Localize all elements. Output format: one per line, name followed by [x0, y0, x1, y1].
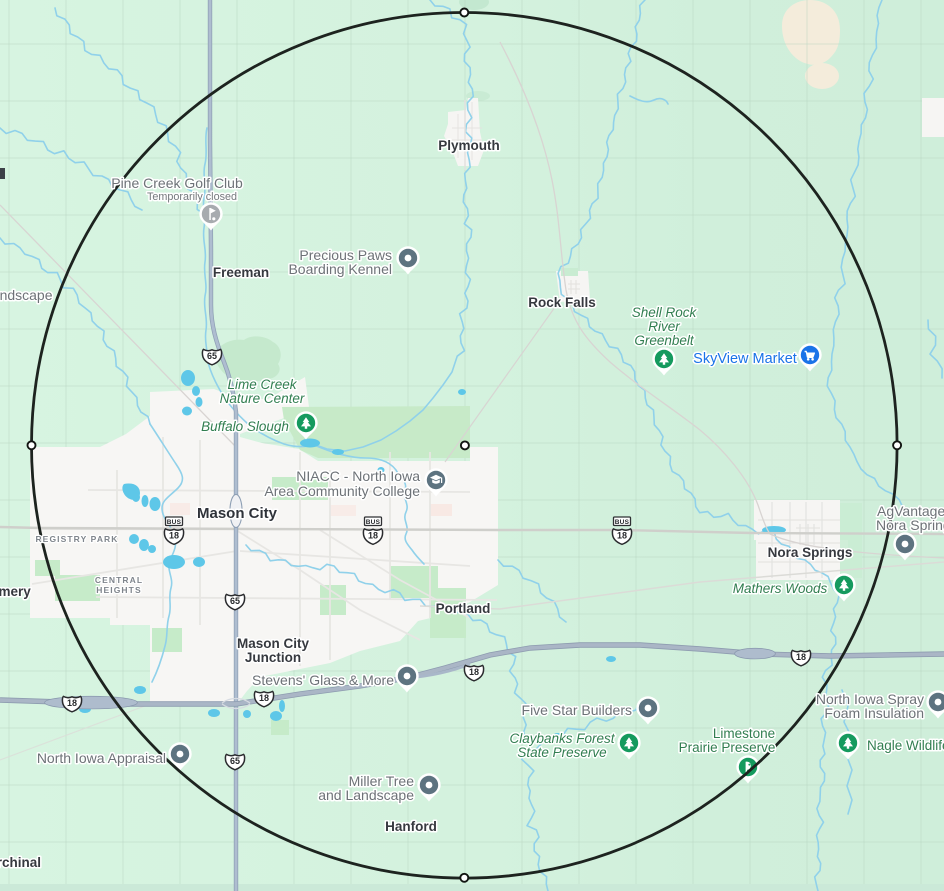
svg-text:65: 65 [207, 351, 217, 361]
svg-text:18: 18 [469, 667, 479, 677]
svg-text:BUS: BUS [615, 519, 630, 526]
svg-text:Junction: Junction [245, 650, 301, 665]
svg-text:18: 18 [617, 531, 627, 541]
svg-text:North Iowa Appraisal: North Iowa Appraisal [37, 750, 166, 766]
svg-text:Landscape: Landscape [0, 287, 53, 303]
svg-text:Mason City: Mason City [197, 505, 278, 522]
svg-text:18: 18 [796, 652, 806, 662]
svg-text:NIACC - North Iowa: NIACC - North Iowa [296, 468, 420, 484]
svg-text:Boarding Kennel: Boarding Kennel [288, 261, 392, 277]
svg-text:CENTRAL: CENTRAL [95, 575, 143, 585]
svg-text:Portland: Portland [436, 601, 491, 616]
svg-text:Plymouth: Plymouth [438, 138, 500, 153]
svg-text:Nora Spring: Nora Spring [876, 517, 944, 533]
svg-text:Greenbelt: Greenbelt [634, 333, 695, 348]
svg-text:Hanford: Hanford [385, 819, 437, 834]
svg-text:Mason City: Mason City [237, 636, 310, 651]
svg-text:SkyView Market: SkyView Market [693, 351, 797, 367]
svg-text:65: 65 [230, 596, 240, 606]
svg-text:18: 18 [67, 698, 77, 708]
svg-text:Prairie Preserve: Prairie Preserve [679, 740, 776, 755]
svg-text:BUS: BUS [167, 519, 182, 526]
svg-text:Nora Springs: Nora Springs [768, 545, 853, 560]
svg-text:Emery: Emery [0, 584, 31, 599]
svg-text:Nagle Wildlife: Nagle Wildlife [867, 738, 944, 753]
svg-text:Temporarily closed: Temporarily closed [147, 191, 237, 203]
svg-text:Foam Insulation: Foam Insulation [824, 705, 924, 721]
svg-text:Nature Center: Nature Center [220, 391, 305, 406]
svg-text:18: 18 [169, 531, 179, 541]
svg-text:Lime Creek: Lime Creek [227, 377, 297, 392]
svg-text:Pine Creek Golf Club: Pine Creek Golf Club [111, 175, 243, 191]
svg-text:State Preserve: State Preserve [517, 745, 606, 760]
svg-text:and Landscape: and Landscape [318, 787, 414, 803]
svg-text:River: River [648, 319, 680, 334]
svg-text:Limestone: Limestone [713, 726, 775, 741]
svg-text:Five Star Builders: Five Star Builders [522, 702, 632, 718]
svg-text:Area Community College: Area Community College [264, 483, 420, 499]
svg-text:18: 18 [259, 693, 269, 703]
svg-text:Mathers Woods: Mathers Woods [733, 581, 828, 596]
svg-text:Marchinal: Marchinal [0, 855, 41, 870]
svg-text:Claybanks Forest: Claybanks Forest [509, 731, 615, 746]
svg-text:HEIGHTS: HEIGHTS [96, 585, 141, 595]
svg-text:BUS: BUS [366, 519, 381, 526]
svg-text:65: 65 [230, 756, 240, 766]
svg-text:18: 18 [368, 531, 378, 541]
svg-text:REGISTRY PARK: REGISTRY PARK [35, 534, 118, 544]
svg-text:Freeman: Freeman [213, 265, 269, 280]
svg-text:Stevens' Glass & More: Stevens' Glass & More [252, 672, 394, 688]
svg-text:Buffalo Slough: Buffalo Slough [201, 419, 289, 434]
svg-text:Rock Falls: Rock Falls [528, 295, 596, 310]
svg-text:Shell Rock: Shell Rock [632, 305, 698, 320]
